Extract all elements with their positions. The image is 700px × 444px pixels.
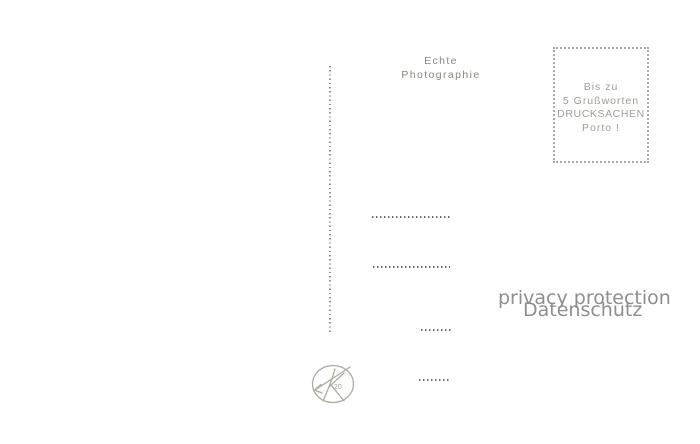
stamp-box-line1: Bis zu xyxy=(555,81,647,95)
stamp-box: Bis zu 5 Grußworten DRUCKSACHEN Porto ! xyxy=(553,47,649,163)
address-line xyxy=(421,329,451,331)
photo-note: Echte Photographie xyxy=(391,55,491,82)
stamp-box-line3: DRUCKSACHEN xyxy=(555,108,647,122)
logo-number: 20 xyxy=(334,384,342,391)
address-line xyxy=(373,266,450,268)
stamp-box-line4: Porto ! xyxy=(555,122,647,136)
divider-dotted-line xyxy=(329,66,331,334)
address-line xyxy=(419,379,449,381)
watermark-line2: Datenschutz xyxy=(523,299,642,321)
photo-note-line1: Echte xyxy=(391,55,491,69)
postcard-back: Echte Photographie Bis zu 5 Grußworten D… xyxy=(0,0,700,444)
address-line xyxy=(372,216,450,218)
photo-note-line2: Photographie xyxy=(391,69,491,83)
publisher-logo: 20 xyxy=(306,360,360,410)
stamp-box-line2: 5 Grußworten xyxy=(555,95,647,109)
